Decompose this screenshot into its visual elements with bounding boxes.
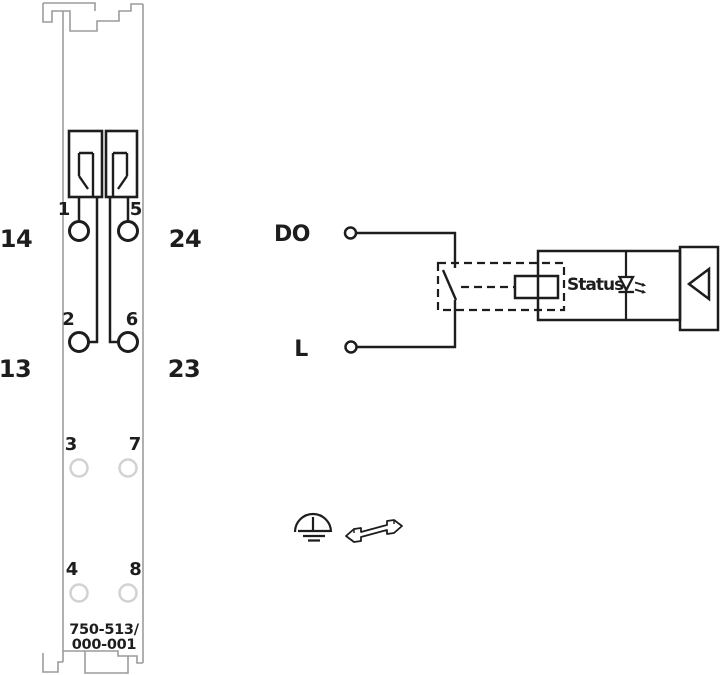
terminal-number-6: 6 xyxy=(126,309,139,330)
schematic-diagram: DO L Status xyxy=(260,195,720,375)
part-number: 750-513/ 000-001 xyxy=(69,622,139,653)
terminal-circle-7 xyxy=(120,460,137,477)
terminal-circle-6 xyxy=(119,333,138,352)
terminal-number-8: 8 xyxy=(129,559,142,580)
release-latch-top xyxy=(43,3,95,11)
terminal-number-2: 2 xyxy=(62,309,75,330)
l-wire xyxy=(357,300,455,347)
terminal-circle-8 xyxy=(120,585,137,602)
marking-symbols xyxy=(280,495,420,565)
terminal-number-4: 4 xyxy=(66,559,79,580)
bus-interface-block xyxy=(680,247,718,330)
relay-contact-blade xyxy=(443,270,456,300)
wiring-diagram-page: 1 5 2 6 3 7 4 8 14 24 13 23 750-513/ 000… xyxy=(0,0,720,675)
side-label-24: 24 xyxy=(169,225,201,253)
terminal-number-5: 5 xyxy=(130,199,143,220)
foot-hook xyxy=(43,653,63,672)
cage-clamp-5-icon xyxy=(106,131,137,197)
part-number-line2: 000-001 xyxy=(72,637,137,653)
foot-tab xyxy=(85,651,128,673)
l-label: L xyxy=(294,337,308,362)
relay-coil xyxy=(515,276,558,298)
terminal-circle-4 xyxy=(71,585,88,602)
release-latch-hook xyxy=(43,3,63,22)
terminal-circle-5 xyxy=(119,222,138,241)
cage-clamp-1-icon xyxy=(69,131,102,197)
part-number-line1: 750-513/ xyxy=(69,622,139,638)
status-led-icon xyxy=(619,277,647,294)
terminal-circle-2 xyxy=(70,333,89,352)
housing-top-edge xyxy=(63,4,143,31)
internal-conductors xyxy=(79,197,128,342)
terminal-number-1: 1 xyxy=(58,199,71,220)
side-label-14: 14 xyxy=(0,225,32,253)
side-label-23: 23 xyxy=(168,355,200,383)
terminal-number-7: 7 xyxy=(129,434,142,455)
terminal-circle-1 xyxy=(70,222,89,241)
module-housing-outline xyxy=(43,3,143,673)
l-terminal-circle xyxy=(346,342,357,353)
earth-ground-icon xyxy=(295,514,331,541)
do-label: DO xyxy=(274,222,310,247)
io-module-drawing: 1 5 2 6 3 7 4 8 14 24 13 23 750-513/ 000… xyxy=(0,0,230,675)
bus-interface-triangle-icon xyxy=(689,269,709,299)
do-terminal-circle xyxy=(345,228,356,239)
status-label: Status xyxy=(567,275,624,295)
terminal-circle-3 xyxy=(71,460,88,477)
side-label-13: 13 xyxy=(0,355,31,383)
terminal-number-3: 3 xyxy=(65,434,78,455)
din-rail-icon xyxy=(346,520,402,542)
